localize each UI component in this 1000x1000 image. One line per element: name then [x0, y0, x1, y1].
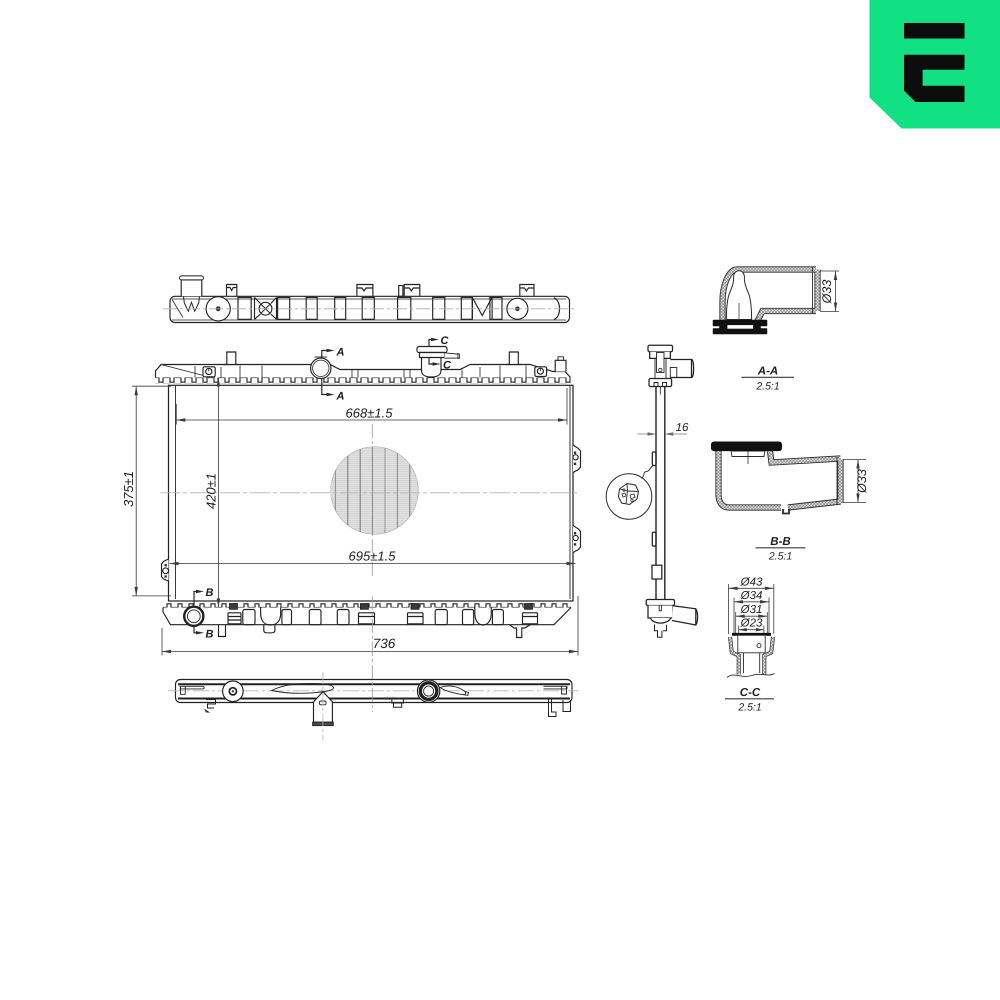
svg-text:Ø33: Ø33	[855, 469, 869, 494]
svg-text:C: C	[443, 360, 452, 372]
svg-text:C-C: C-C	[740, 687, 761, 699]
svg-text:B: B	[206, 587, 214, 599]
svg-text:16: 16	[676, 422, 689, 434]
svg-text:736: 736	[373, 636, 396, 651]
svg-text:2.5:1: 2.5:1	[768, 551, 792, 563]
svg-text:Ø31: Ø31	[740, 604, 763, 616]
svg-text:Ø43: Ø43	[740, 576, 763, 588]
svg-text:Ø33: Ø33	[820, 280, 834, 305]
svg-text:A-A: A-A	[757, 366, 778, 378]
svg-text:375±1: 375±1	[121, 471, 136, 507]
svg-text:C: C	[441, 335, 450, 347]
svg-text:Ø34: Ø34	[740, 590, 763, 602]
svg-text:Ø23: Ø23	[740, 618, 763, 630]
svg-text:668±1.5: 668±1.5	[346, 406, 394, 421]
svg-text:2.5:1: 2.5:1	[755, 381, 779, 393]
svg-text:B-B: B-B	[770, 536, 790, 548]
svg-text:2.5:1: 2.5:1	[737, 702, 761, 714]
svg-text:695±1.5: 695±1.5	[349, 549, 397, 564]
svg-text:A: A	[336, 347, 345, 359]
svg-text:B: B	[206, 628, 214, 640]
svg-text:420±1: 420±1	[204, 473, 219, 509]
svg-text:A: A	[336, 391, 345, 403]
